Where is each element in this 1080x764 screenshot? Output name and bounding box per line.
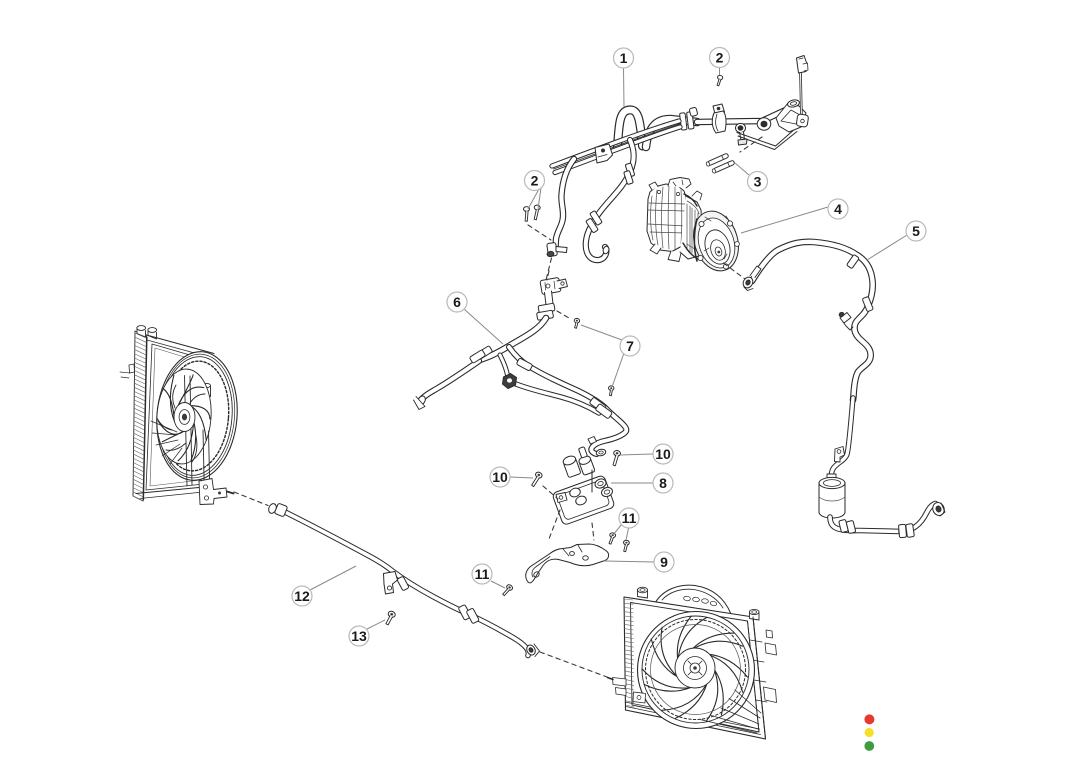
svg-text:11: 11 bbox=[622, 510, 637, 526]
svg-text:11: 11 bbox=[475, 566, 490, 582]
svg-text:9: 9 bbox=[660, 554, 668, 570]
svg-text:6: 6 bbox=[453, 294, 461, 310]
svg-text:8: 8 bbox=[659, 475, 667, 491]
svg-text:12: 12 bbox=[294, 588, 310, 604]
svg-text:1: 1 bbox=[620, 50, 628, 66]
svg-text:3: 3 bbox=[754, 174, 762, 190]
svg-text:10: 10 bbox=[492, 469, 508, 485]
svg-text:2: 2 bbox=[716, 50, 724, 66]
svg-text:7: 7 bbox=[626, 338, 634, 354]
svg-text:13: 13 bbox=[351, 628, 367, 644]
svg-text:5: 5 bbox=[912, 223, 920, 239]
svg-text:4: 4 bbox=[834, 201, 842, 217]
svg-text:10: 10 bbox=[655, 446, 671, 462]
svg-text:2: 2 bbox=[531, 173, 539, 189]
